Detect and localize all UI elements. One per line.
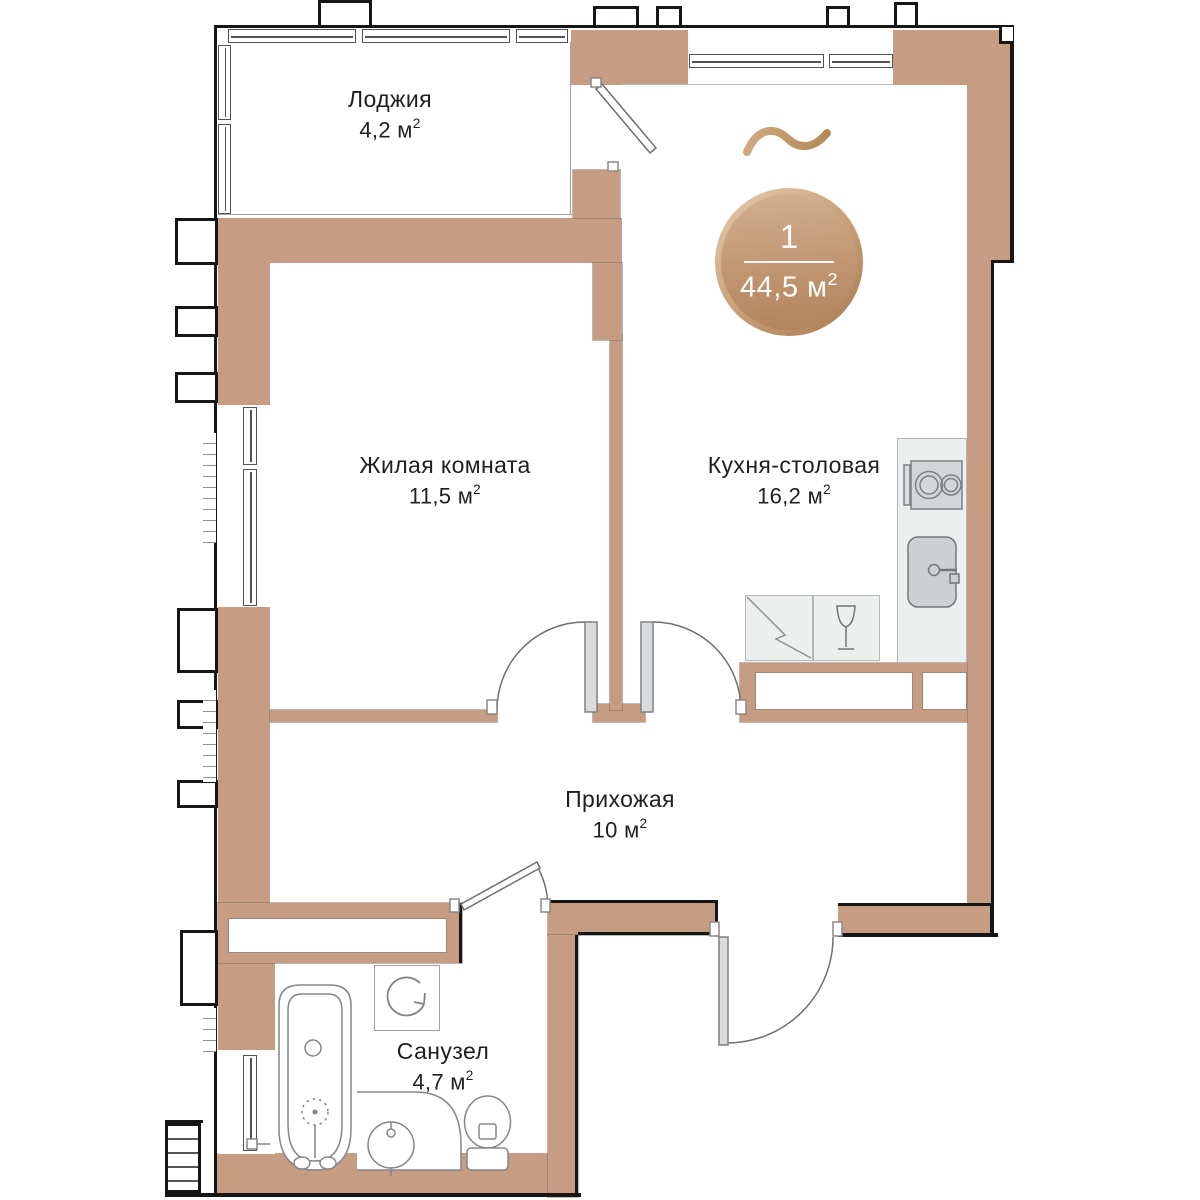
entrance-door: [710, 922, 842, 1045]
living-window: [243, 469, 257, 606]
balcony-fin: [180, 930, 218, 1006]
outline-bathtop-edge: [459, 903, 462, 963]
balcony-fin: [177, 780, 218, 808]
wall-center-mid: [593, 263, 622, 340]
wall-loggia-bottom: [218, 218, 622, 263]
loggia-window: [516, 29, 568, 43]
dishwasher-icon: [745, 595, 813, 661]
floor-plan: Лоджия 4,2 м2 Жилая комната 11,5 м2 Кухн…: [0, 0, 1200, 1200]
outline-bathwall-top: [548, 900, 718, 903]
living-window: [243, 407, 257, 465]
room-name: Прихожая: [565, 786, 675, 813]
balcony-fin: [175, 218, 218, 265]
loggia-window: [228, 29, 356, 43]
bathtub-icon: [279, 985, 351, 1170]
facade-stub: [894, 2, 918, 28]
room-name: Жилая комната: [359, 452, 530, 479]
facade-stub: [826, 6, 850, 28]
facade-hatch: [203, 690, 216, 782]
facade-stub: [318, 0, 372, 28]
kitchen-door: [641, 622, 746, 714]
washing-machine-icon: [374, 965, 440, 1031]
outline-entrance-top: [838, 903, 993, 906]
room-label-hall: Прихожая 10 м2: [565, 786, 675, 843]
loggia-floor-line: [218, 214, 573, 215]
apartment-badge: 1 44,5 м2: [715, 188, 863, 336]
outline-bottom: [165, 1193, 581, 1197]
glass-cabinet-icon: [813, 595, 880, 661]
loggia-side-window: [218, 124, 231, 214]
loggia-side-window: [218, 45, 231, 120]
badge-divider: [744, 261, 834, 263]
facade-stub: [593, 6, 639, 28]
balcony-fin: [175, 372, 218, 403]
room-name: Лоджия: [348, 86, 432, 113]
facade-hatch: [203, 433, 216, 543]
bath-wall-niche: [228, 918, 447, 953]
living-room-door: [487, 622, 597, 714]
kitchen-niche-small: [922, 672, 967, 710]
room-area: 4,7 м2: [397, 1069, 489, 1095]
room-area: 11,5 м2: [359, 483, 530, 509]
brand-squiggle-icon: [747, 131, 827, 152]
wall-left-mid: [218, 607, 270, 712]
room-name: Кухня-столовая: [708, 452, 881, 479]
wall-bath-right-h: [548, 903, 717, 935]
room-label-bath: Санузел 4,7 м2: [397, 1038, 489, 1095]
balcony-fin: [177, 608, 218, 673]
loggia-right-line: [570, 42, 571, 214]
outline-right-lower: [991, 260, 994, 910]
balcony-fin: [175, 306, 218, 337]
facade-hatch: [203, 1008, 216, 1052]
wall-hall-top-thin: [270, 710, 497, 722]
outline-right-upper: [1010, 25, 1014, 263]
room-label-loggia: Лоджия 4,2 м2: [348, 86, 432, 143]
loggia-door: [591, 78, 656, 171]
room-name: Санузел: [397, 1038, 489, 1065]
outline-bathwall-inner: [575, 935, 578, 1195]
bathroom-door: [450, 862, 550, 912]
wall-loggia-right: [573, 170, 620, 218]
room-area: 4,2 м2: [348, 117, 432, 143]
facade-stub: [656, 6, 682, 28]
room-area: 16,2 м2: [708, 483, 881, 509]
room-count: 1: [780, 220, 798, 255]
wall-bath-bottom: [215, 1153, 578, 1197]
wall-top-right-block: [893, 30, 1013, 85]
shaft-hatch-block: [165, 1123, 201, 1193]
room-label-kitchen: Кухня-столовая 16,2 м2: [708, 452, 881, 509]
apartment-badge-face: 1 44,5 м2: [721, 194, 857, 330]
outline-bathwall-right: [715, 900, 718, 936]
wall-right-upper: [967, 85, 1013, 262]
outline-entrance-bottom: [838, 933, 998, 937]
kitchen-window: [829, 54, 893, 68]
bath-window: [243, 1055, 257, 1151]
kitchen-niche-large: [755, 672, 913, 710]
wall-right-lower: [967, 262, 993, 908]
wall-center-thin: [610, 335, 622, 710]
outline-entrance-right: [990, 903, 994, 937]
wall-left-upper: [218, 263, 270, 405]
wall-top-left-block: [571, 30, 688, 85]
total-area: 44,5 м2: [740, 270, 838, 305]
room-area: 10 м2: [565, 817, 675, 843]
kitchen-recess-line: [622, 84, 893, 85]
room-label-living: Жилая комната 11,5 м2: [359, 452, 530, 509]
outline-right-step: [991, 260, 1013, 263]
outline-bathwall-bottom: [578, 932, 718, 935]
loggia-window: [362, 29, 510, 43]
kitchen-window: [689, 54, 824, 68]
corner-notch: [999, 27, 1013, 44]
wall-left-hall: [218, 712, 270, 905]
wall-bath-right-v: [548, 935, 578, 1197]
kitchen-counter: [897, 438, 967, 663]
